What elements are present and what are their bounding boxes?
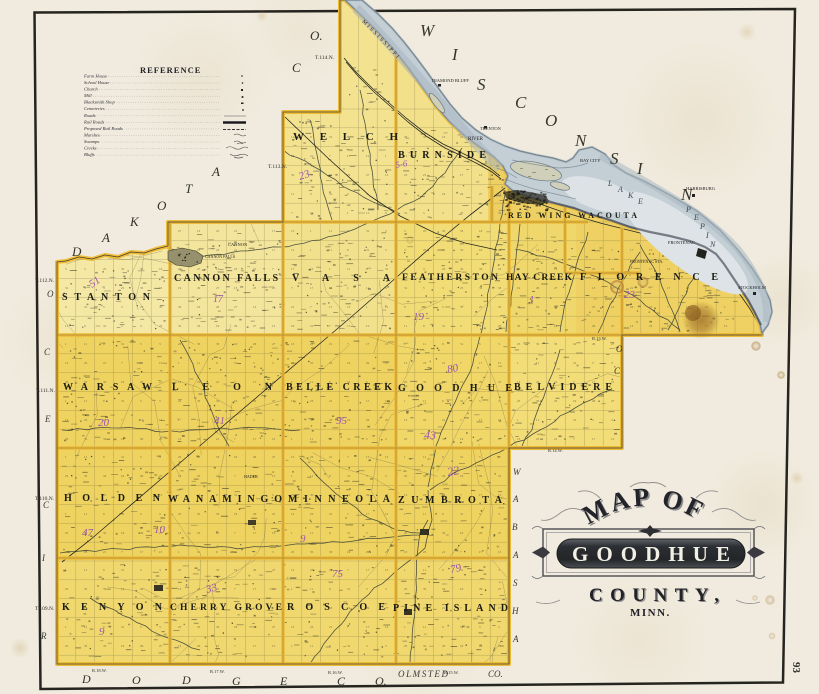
svg-text:27: 27 [272,568,276,572]
svg-text:Bluffs: Bluffs [84,152,95,157]
svg-text:17: 17 [253,644,257,648]
svg-text:19: 19 [460,531,464,535]
svg-text:33: 33 [216,625,220,629]
svg-text:C: C [44,347,51,357]
svg-text:33: 33 [310,173,314,177]
svg-text:1: 1 [529,294,535,306]
svg-text:35: 35 [310,550,314,554]
svg-text:29: 29 [592,324,596,328]
svg-text:15: 15 [272,644,276,648]
svg-text:23: 23 [536,437,540,441]
svg-text:5-6: 5-6 [395,158,409,170]
svg-text:17: 17 [253,380,257,384]
svg-text:CANNON FALLS: CANNON FALLS [174,273,278,284]
svg-text:27: 27 [498,380,502,384]
svg-text:N: N [574,131,588,150]
svg-text:33: 33 [103,474,107,478]
svg-text:31: 31 [121,568,125,572]
svg-text:15: 15 [366,154,370,158]
svg-text:REFERENCE: REFERENCE [140,65,201,75]
svg-text:31: 31 [385,267,389,271]
svg-text:33: 33 [329,550,333,554]
svg-text:33: 33 [460,248,464,252]
svg-text:15: 15 [385,512,389,516]
svg-text:13: 13 [178,437,182,441]
svg-text:31: 31 [460,455,464,459]
svg-text:29: 29 [592,342,596,346]
svg-text:A: A [101,230,110,245]
svg-text:13: 13 [291,568,295,572]
svg-text:T.113.N.: T.113.N. [268,164,288,170]
svg-text:29: 29 [592,399,596,403]
svg-text:CHERRY GROVE: CHERRY GROVE [170,603,282,613]
svg-text:L: L [607,179,613,188]
svg-text:31: 31 [234,418,238,422]
svg-text:11: 11 [404,324,407,328]
svg-text:23: 23 [216,229,220,233]
svg-text:19: 19 [159,267,163,271]
svg-text:25: 25 [442,267,446,271]
svg-text:T.109.N.: T.109.N. [35,606,55,612]
svg-text:15: 15 [649,248,653,252]
svg-text:21: 21 [442,418,446,422]
svg-text:20: 20 [98,417,110,429]
svg-text:23: 23 [423,418,427,422]
svg-text:31: 31 [366,229,370,233]
svg-text:31: 31 [329,135,333,139]
svg-text:33: 33 [103,644,107,648]
svg-text:29: 29 [479,644,483,648]
svg-text:OLMSTED: OLMSTED [398,669,449,679]
svg-text:13: 13 [178,531,182,535]
svg-text:DIAMOND BLUFF: DIAMOND BLUFF [432,78,469,83]
svg-text:17: 17 [291,267,295,271]
svg-text:15: 15 [479,173,483,177]
svg-text:29: 29 [460,192,464,196]
svg-text:9: 9 [99,626,105,638]
svg-text:D: D [81,672,91,686]
svg-text:17: 17 [460,173,464,177]
svg-text:31: 31 [442,154,446,158]
svg-text:A: A [512,494,519,504]
svg-text:33: 33 [329,418,333,422]
svg-text:35: 35 [442,229,446,233]
svg-text:School House: School House [84,80,109,85]
svg-text:11: 11 [329,229,332,233]
svg-text:23: 23 [624,289,636,301]
svg-text:19: 19 [413,311,425,323]
svg-text:C: C [515,93,527,112]
svg-text:13: 13 [216,267,220,271]
svg-text:13: 13 [630,324,634,328]
svg-text:25: 25 [404,644,408,648]
svg-text:E: E [693,213,699,222]
svg-text:33: 33 [442,531,446,535]
svg-text:11: 11 [423,625,426,629]
svg-text:35: 35 [197,625,201,629]
svg-text:17: 17 [366,625,370,629]
svg-text:Creeks: Creeks [84,146,97,151]
svg-text:31: 31 [404,286,408,290]
svg-text:13: 13 [592,286,596,290]
svg-text:13: 13 [178,587,182,591]
svg-text:25: 25 [121,286,125,290]
svg-text:R.13.W.: R.13.W. [592,336,607,341]
svg-text:27: 27 [178,229,182,233]
svg-text:15: 15 [159,361,163,365]
svg-text:17: 17 [479,550,483,554]
svg-text:29: 29 [479,587,483,591]
svg-text:17: 17 [140,550,144,554]
svg-text:BELVIDERE: BELVIDERE [514,382,612,393]
svg-text:O: O [545,111,557,130]
svg-text:29: 29 [479,531,483,535]
svg-text:23: 23 [197,644,201,648]
svg-text:25: 25 [65,587,69,591]
svg-text:33: 33 [498,211,502,215]
svg-text:23: 23 [404,173,408,177]
svg-text:17: 17 [366,512,370,516]
svg-text:21: 21 [329,399,333,403]
svg-text:21: 21 [442,550,446,554]
svg-text:C: C [614,366,621,376]
svg-text:15: 15 [498,550,502,554]
svg-text:21: 21 [216,474,220,478]
svg-text:29: 29 [197,286,201,290]
svg-text:27: 27 [592,305,596,309]
svg-text:33: 33 [554,399,558,403]
svg-text:29: 29 [479,474,483,478]
svg-text:35: 35 [178,324,182,328]
svg-text:Roads: Roads [83,113,96,118]
svg-text:21: 21 [291,305,295,309]
svg-text:19: 19 [234,399,238,403]
svg-text:21: 21 [103,361,107,365]
svg-text:21: 21 [234,229,238,233]
svg-text:BAY CITY: BAY CITY [580,158,601,163]
svg-text:CANNON FALLS: CANNON FALLS [205,254,235,259]
svg-text:47: 47 [82,527,94,539]
svg-text:29: 29 [253,568,257,572]
svg-text:R.15.W.: R.15.W. [444,670,459,675]
svg-text:31: 31 [84,305,88,309]
svg-text:29: 29 [253,512,257,516]
svg-text:17: 17 [329,305,333,309]
svg-text:31: 31 [121,625,125,629]
svg-text:31: 31 [347,644,351,648]
svg-text:21: 21 [103,550,107,554]
svg-text:31: 31 [347,474,351,478]
svg-text:17: 17 [630,248,634,252]
svg-text:17: 17 [592,437,596,441]
svg-text:33: 33 [442,644,446,648]
svg-text:75: 75 [332,568,344,580]
svg-text:25: 25 [517,399,521,403]
svg-text:25: 25 [178,625,182,629]
svg-text:19: 19 [197,305,201,309]
svg-text:35: 35 [479,211,483,215]
svg-text:CO.: CO. [488,669,503,679]
svg-text:17: 17 [366,342,370,346]
svg-text:31: 31 [442,324,446,328]
svg-text:19: 19 [460,644,464,648]
svg-text:13: 13 [291,342,295,346]
svg-text:23: 23 [554,248,558,252]
svg-text:R.14.W.: R.14.W. [548,448,563,453]
svg-text:FRONTENAC STA.: FRONTENAC STA. [630,259,663,264]
svg-text:S: S [513,578,518,588]
svg-text:21: 21 [216,437,220,441]
svg-text:25: 25 [498,324,502,328]
svg-text:O.: O. [310,28,323,43]
svg-text:C: C [292,60,301,75]
svg-text:19: 19 [517,286,521,290]
svg-text:11: 11 [347,267,350,271]
svg-text:19: 19 [460,474,464,478]
svg-text:23: 23 [592,267,596,271]
svg-text:17: 17 [347,324,351,328]
svg-text:19: 19 [121,531,125,535]
svg-text:E: E [637,197,643,206]
svg-text:W: W [420,21,436,40]
svg-text:T.112.N.: T.112.N. [35,278,55,284]
svg-text:13: 13 [234,286,238,290]
svg-text:29: 29 [536,286,540,290]
svg-text:19: 19 [216,324,220,328]
svg-text:23: 23 [310,399,314,403]
svg-text:11: 11 [84,568,87,572]
svg-text:17: 17 [479,418,483,422]
svg-text:11: 11 [84,342,87,346]
svg-text:33: 33 [460,229,464,233]
svg-text:17: 17 [310,286,314,290]
svg-text:Swamps: Swamps [84,139,99,144]
svg-text:35: 35 [121,267,125,271]
svg-text:27: 27 [234,305,238,309]
svg-text:10: 10 [154,524,166,536]
svg-text:17: 17 [272,248,276,252]
svg-text:43: 43 [424,428,436,442]
svg-text:33: 33 [536,324,540,328]
svg-text:19: 19 [234,512,238,516]
svg-text:33: 33 [103,437,107,441]
svg-text:19: 19 [347,361,351,365]
svg-text:19: 19 [442,135,446,139]
svg-text:31: 31 [460,399,464,403]
svg-text:25: 25 [178,455,182,459]
svg-text:29: 29 [366,418,370,422]
svg-text:21: 21 [611,267,615,271]
svg-text:11: 11 [84,455,87,459]
svg-text:35: 35 [84,474,88,478]
svg-text:FRONTENAC: FRONTENAC [668,240,695,245]
svg-text:K: K [129,214,140,229]
svg-text:E: E [279,674,288,688]
svg-text:27: 27 [385,606,389,610]
svg-text:25: 25 [517,342,521,346]
svg-text:25: 25 [178,512,182,516]
svg-text:13: 13 [404,550,408,554]
svg-text:25: 25 [404,587,408,591]
svg-text:Proposed Rail Roads: Proposed Rail Roads [83,126,123,131]
svg-text:35: 35 [517,324,521,328]
svg-text:33: 33 [197,324,201,328]
svg-text:25: 25 [291,550,295,554]
svg-text:13: 13 [291,455,295,459]
svg-text:93: 93 [790,662,802,674]
svg-text:13: 13 [404,418,408,422]
svg-text:11: 11 [65,324,68,328]
svg-text:19: 19 [234,455,238,459]
svg-text:31: 31 [366,248,370,252]
svg-text:35: 35 [423,644,427,648]
svg-text:41: 41 [214,415,225,427]
svg-text:25: 25 [65,644,69,648]
svg-text:15: 15 [272,437,276,441]
svg-text:27: 27 [611,399,615,403]
svg-text:35: 35 [460,267,464,271]
svg-text:29: 29 [140,437,144,441]
svg-text:I: I [705,231,709,240]
svg-text:D: D [71,244,82,259]
svg-text:15: 15 [385,455,389,459]
svg-text:R.18.W.: R.18.W. [92,668,107,673]
svg-text:27: 27 [197,267,201,271]
svg-text:33: 33 [216,342,220,346]
svg-text:35: 35 [498,305,502,309]
svg-text:35: 35 [84,644,88,648]
svg-text:35: 35 [536,399,540,403]
svg-text:A: A [617,185,623,194]
svg-text:31: 31 [460,342,464,346]
svg-text:P: P [699,222,705,231]
svg-text:T.110.N.: T.110.N. [35,496,55,502]
svg-text:19: 19 [573,399,577,403]
svg-text:O: O [616,344,623,354]
svg-text:17: 17 [649,267,653,271]
svg-text:B: B [512,522,518,532]
svg-text:13: 13 [197,229,201,233]
svg-text:31: 31 [573,361,577,365]
svg-text:19: 19 [442,192,446,196]
svg-text:25: 25 [404,437,408,441]
svg-text:23: 23 [216,248,220,252]
svg-text:95: 95 [336,415,348,427]
svg-text:13: 13 [291,625,295,629]
svg-text:25: 25 [291,418,295,422]
svg-text:G: G [232,674,241,688]
svg-text:19: 19 [573,342,577,346]
svg-text:11: 11 [310,644,313,648]
svg-text:33: 33 [216,568,220,572]
svg-text:31: 31 [460,512,464,516]
svg-text:15: 15 [366,324,370,328]
svg-text:FEATHERSTON: FEATHERSTON [402,273,498,283]
svg-text:19: 19 [121,644,125,648]
svg-text:31: 31 [573,418,577,422]
svg-text:21: 21 [442,361,446,365]
svg-text:33: 33 [498,286,502,290]
svg-text:HADER: HADER [244,474,258,479]
svg-text:17: 17 [366,568,370,572]
svg-text:27: 27 [611,324,615,328]
svg-text:O: O [157,198,167,213]
svg-text:21: 21 [329,342,333,346]
svg-text:15: 15 [272,474,276,478]
svg-text:MINN.: MINN. [630,607,671,619]
svg-text:27: 27 [272,455,276,459]
svg-text:35: 35 [310,493,314,497]
svg-text:31: 31 [347,587,351,591]
svg-text:17: 17 [253,531,257,535]
svg-text:17: 17 [366,399,370,403]
svg-text:T: T [185,181,193,196]
svg-text:K: K [627,191,634,200]
svg-text:Church: Church [84,87,98,92]
svg-text:19: 19 [460,587,464,591]
svg-text:27: 27 [272,342,276,346]
svg-text:11: 11 [366,211,369,215]
svg-text:23: 23 [291,324,295,328]
svg-text:27: 27 [498,531,502,535]
svg-text:A: A [211,164,220,179]
svg-text:11: 11 [423,342,426,346]
svg-text:15: 15 [291,248,295,252]
svg-text:31: 31 [121,342,125,346]
svg-text:22: 22 [446,463,460,479]
svg-text:19: 19 [347,418,351,422]
svg-text:23: 23 [84,418,88,422]
svg-text:13: 13 [404,361,408,365]
svg-text:29: 29 [140,587,144,591]
svg-text:31: 31 [234,361,238,365]
svg-text:25: 25 [178,568,182,572]
svg-text:R.17.W.: R.17.W. [210,669,225,674]
svg-text:STOCKHOLM: STOCKHOLM [738,285,766,290]
svg-text:11: 11 [84,512,87,516]
svg-text:29: 29 [140,474,144,478]
svg-text:35: 35 [197,568,201,572]
svg-text:31: 31 [347,531,351,535]
svg-text:29: 29 [234,324,238,328]
svg-text:31: 31 [347,437,351,441]
svg-text:Farm House: Farm House [83,74,107,79]
svg-text:13: 13 [253,305,257,309]
svg-text:S: S [477,75,486,94]
svg-text:29: 29 [140,531,144,535]
svg-text:13: 13 [291,512,295,516]
svg-text:27: 27 [498,437,502,441]
svg-text:H: H [511,606,519,616]
svg-text:35: 35 [197,399,201,403]
svg-text:33: 33 [442,474,446,478]
svg-text:29: 29 [253,342,257,346]
svg-text:23: 23 [630,305,634,309]
svg-text:35: 35 [423,587,427,591]
svg-text:29: 29 [479,437,483,441]
svg-text:23: 23 [253,286,257,290]
svg-text:33: 33 [554,342,558,346]
svg-text:R: R [40,631,47,641]
svg-text:31: 31 [65,286,69,290]
svg-text:31: 31 [103,324,107,328]
svg-text:27: 27 [366,173,370,177]
svg-text:9: 9 [300,533,306,545]
svg-text:13: 13 [385,173,389,177]
svg-text:25: 25 [65,531,69,535]
svg-text:CANNON: CANNON [228,242,248,247]
svg-text:WANAMINGO: WANAMINGO [168,494,282,505]
